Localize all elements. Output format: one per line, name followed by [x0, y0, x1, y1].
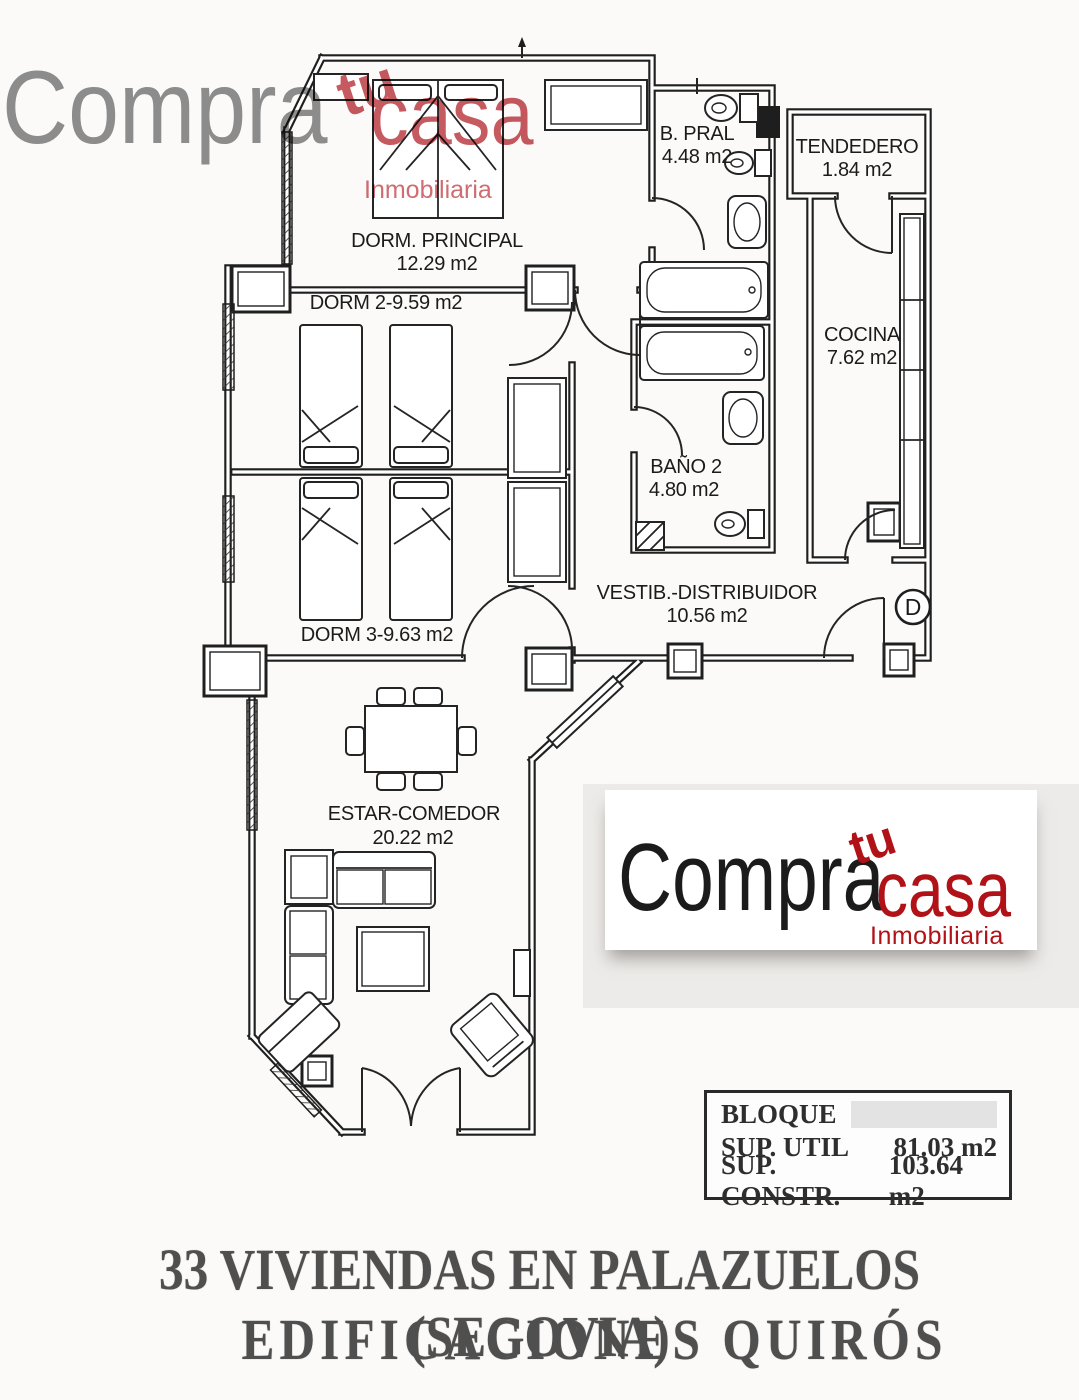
brand-logo-card: Compra tu casa Inmobiliaria [618, 830, 1038, 950]
redacted-value [851, 1101, 997, 1128]
toilet-tank [748, 510, 764, 538]
furniture-estar [256, 688, 536, 1080]
window-estar [247, 700, 257, 830]
toilet [705, 95, 737, 121]
label-b-pral: B. PRAL [660, 123, 735, 145]
furniture-dorm3 [300, 478, 452, 620]
armchair [448, 990, 536, 1079]
label-estar: ESTAR-COMEDOR [328, 803, 500, 825]
area-dorm-principal: 12.29 m2 [397, 253, 478, 275]
area-tendedero: 1.84 m2 [822, 159, 892, 181]
bed [390, 478, 452, 620]
dark-pillar [756, 106, 780, 138]
door-entrance [824, 598, 884, 658]
brand-word-compra: Compra [618, 830, 884, 926]
entrance-letter: D [905, 594, 922, 620]
kitchen-counter [900, 214, 924, 548]
developer-name: EDIFICACIONES QUIRÓS [136, 1306, 1053, 1373]
surface-summary-table: BLOQUE SUP. UTIL 81.03 m2 SUP. CONSTR. 1… [704, 1090, 1012, 1200]
door-dorm3 [508, 586, 572, 650]
brand-subtitle: Inmobiliaria [364, 178, 492, 203]
dining-table [365, 706, 457, 772]
area-estar: 20.22 m2 [373, 827, 454, 849]
area-cocina: 7.62 m2 [827, 347, 897, 369]
coffee-table [357, 927, 429, 991]
bed [300, 478, 362, 620]
french-door-left [362, 1068, 411, 1132]
bed [390, 325, 452, 467]
entrance-marker: D [896, 590, 930, 624]
area-vestibulo: 10.56 m2 [667, 605, 748, 627]
label-dorm-principal: DORM. PRINCIPAL [351, 230, 523, 252]
brand-logo-watermark: Compra tu casa Inmobiliaria [2, 56, 602, 216]
bidet-tank [755, 150, 771, 176]
toilet [715, 512, 745, 536]
label-bano2: BAÑO 2 [650, 454, 722, 478]
row-value: 103.64 m2 [889, 1150, 997, 1212]
row-label: BLOQUE [721, 1099, 837, 1130]
scanned-floorplan-page: { "brand": { "word1": "Compra", "word2":… [0, 0, 1079, 1400]
toilet-tank [740, 94, 758, 122]
label-cocina: COCINA [824, 324, 901, 346]
wall-shelf [514, 950, 530, 996]
label-tendedero: TENDEDERO [796, 136, 919, 158]
wardrobes [508, 378, 566, 582]
door-bano2 [634, 407, 682, 455]
brand-word-casa: casa [876, 850, 1011, 928]
french-door-right [411, 1068, 460, 1132]
row-label: SUP. CONSTR. [721, 1150, 889, 1212]
north-arrowhead [518, 37, 526, 47]
brand-word-casa: casa [370, 72, 534, 158]
door-bano-principal [652, 198, 704, 250]
bed [300, 325, 362, 467]
fixtures-bano2 [636, 326, 764, 550]
label-vestibulo: VESTIB.-DISTRIBUIDOR [597, 582, 818, 604]
table-row: SUP. CONSTR. 103.64 m2 [721, 1164, 997, 1197]
door-tendedero [835, 196, 892, 253]
window-dorm3 [223, 496, 234, 582]
label-dorm2: DORM 2-9.59 m2 [310, 292, 463, 314]
table-row: BLOQUE [721, 1098, 997, 1131]
area-b-pral: 4.48 m2 [662, 146, 732, 168]
area-bano2: 4.80 m2 [649, 479, 719, 501]
brand-subtitle: Inmobiliaria [870, 924, 1004, 949]
door-estar [462, 586, 534, 658]
label-dorm3: DORM 3-9.63 m2 [301, 624, 454, 646]
furniture-dorm2 [300, 325, 452, 467]
corner-table [285, 850, 333, 904]
window-dorm2 [223, 304, 234, 390]
brand-word-compra: Compra [2, 56, 328, 160]
sofa [333, 852, 435, 908]
